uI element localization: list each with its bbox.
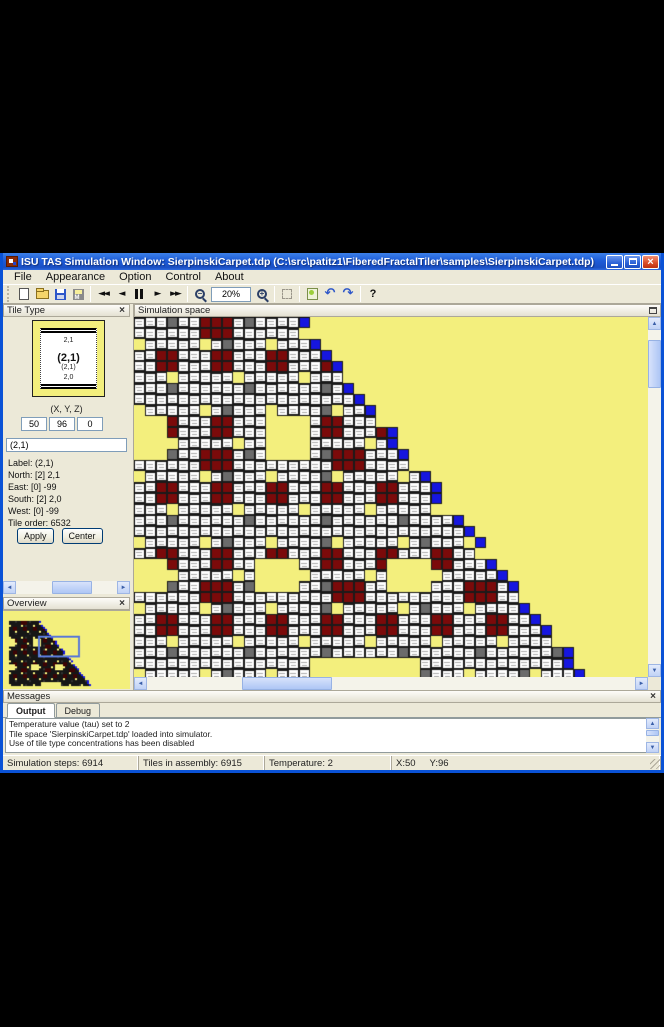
save-button[interactable]	[51, 285, 69, 303]
simulation-panel: Simulation space ▲ ▼ ◄ ►	[134, 304, 661, 690]
minimize-icon	[611, 264, 618, 266]
new-button[interactable]	[15, 285, 33, 303]
status-bar: Simulation steps: 6914 Tiles in assembly…	[3, 755, 661, 770]
tile-type-hscrollbar[interactable]: ◄ ►	[3, 581, 130, 594]
menu-option[interactable]: Option	[112, 270, 158, 284]
toolbar-separator	[274, 286, 275, 302]
x-coordinate-field[interactable]: 50	[21, 417, 47, 431]
play-icon: ►	[155, 285, 160, 303]
zoom-in-button[interactable]: +	[253, 285, 271, 303]
step-back-button[interactable]: ◄	[112, 285, 130, 303]
toolbar-separator	[360, 286, 361, 302]
export-icon	[73, 289, 84, 300]
open-folder-icon	[36, 290, 49, 299]
rewind-icon: ◄◄	[98, 285, 108, 303]
toolbar: ◄◄ ◄ ► ►► − 20% + ↶ ↷ ?	[3, 284, 661, 304]
tile-label-line: Label: (2,1)	[8, 457, 128, 469]
window-title: ISU TAS Simulation Window: SierpinskiCar…	[21, 256, 606, 268]
pause-icon	[135, 289, 143, 299]
new-document-icon	[19, 288, 29, 300]
tab-output[interactable]: Output	[7, 703, 55, 718]
zoom-out-button[interactable]: −	[191, 285, 209, 303]
status-tiles-in-assembly: Tiles in assembly: 6915	[139, 756, 265, 770]
status-temperature: Temperature: 2	[265, 756, 392, 770]
close-icon: ×	[647, 257, 653, 267]
scroll-left-icon[interactable]: ◄	[3, 581, 16, 594]
toolbar-separator	[187, 286, 188, 302]
tile-north-glue-label: 2,1	[41, 337, 96, 344]
status-simulation-steps: Simulation steps: 6914	[3, 756, 139, 770]
menu-appearance[interactable]: Appearance	[39, 270, 112, 284]
export-button[interactable]	[69, 285, 87, 303]
zoom-level-input[interactable]: 20%	[211, 287, 251, 302]
status-x: X:50	[396, 758, 416, 769]
simulation-header: Simulation space	[134, 304, 661, 317]
tile-type-header: Tile Type ×	[3, 304, 130, 317]
tile-center-label: (2,1)	[57, 352, 80, 364]
help-icon: ?	[370, 288, 377, 300]
fast-forward-icon: ►►	[170, 285, 180, 303]
simulation-title: Simulation space	[138, 305, 649, 316]
messages-title: Messages	[7, 691, 649, 702]
overview-header: Overview ×	[3, 597, 130, 610]
messages-log: Temperature value (tau) set to 2 Tile sp…	[5, 718, 659, 753]
open-button[interactable]	[33, 285, 51, 303]
y-coordinate-field[interactable]: 96	[49, 417, 75, 431]
title-bar: ISU TAS Simulation Window: SierpinskiCar…	[3, 253, 661, 270]
menu-file[interactable]: File	[7, 270, 39, 284]
status-cursor-coords: X:50 Y:96	[392, 756, 661, 770]
redo-button[interactable]: ↷	[339, 285, 357, 303]
scrollbar-corner	[648, 677, 661, 690]
resize-grip[interactable]	[650, 759, 660, 769]
scroll-down-icon[interactable]: ▼	[646, 742, 659, 753]
status-y: Y:96	[430, 758, 449, 769]
redo-icon: ↷	[343, 286, 354, 302]
tile-east-line: East: [0] -99	[8, 481, 128, 493]
scroll-down-icon[interactable]: ▼	[648, 664, 661, 677]
tile-south-glue-label: 2,0	[41, 374, 96, 381]
tile-info: Label: (2,1) North: [2] 2,1 East: [0] -9…	[8, 457, 128, 529]
glue-bar-south	[41, 387, 96, 389]
z-coordinate-field[interactable]: 0	[77, 417, 103, 431]
float-panel-icon[interactable]	[649, 307, 657, 314]
close-button[interactable]: ×	[642, 255, 659, 269]
left-panel: Tile Type × 2,1 (2,1) (2,1) 2,0 (X, Y, Z…	[3, 304, 130, 690]
overview-minimap[interactable]	[3, 610, 130, 689]
simulation-hscrollbar[interactable]: ◄ ►	[134, 677, 648, 690]
tile-type-title: Tile Type	[7, 305, 118, 316]
messages-vscrollbar[interactable]: ▲ ▼	[646, 718, 659, 753]
menu-bar: File Appearance Option Control About	[3, 270, 661, 284]
toolbar-separator	[299, 286, 300, 302]
minimize-button[interactable]	[606, 255, 623, 269]
toolbar-grip[interactable]	[7, 286, 12, 302]
scroll-left-icon[interactable]: ◄	[134, 677, 147, 690]
select-region-button[interactable]	[278, 285, 296, 303]
undo-button[interactable]: ↶	[321, 285, 339, 303]
apply-button[interactable]: Apply	[17, 528, 54, 544]
simulation-canvas[interactable]	[134, 317, 648, 677]
maximize-button[interactable]	[624, 255, 641, 269]
snapshot-icon	[307, 288, 318, 300]
tab-debug[interactable]: Debug	[56, 703, 101, 717]
scroll-thumb[interactable]	[646, 730, 659, 736]
zoom-in-icon: +	[257, 289, 267, 299]
glue-bar-south	[41, 384, 96, 386]
overview-title: Overview	[7, 598, 118, 609]
tile-preview: 2,1 (2,1) (2,1) 2,0	[32, 320, 105, 397]
scroll-right-icon[interactable]: ►	[635, 677, 648, 690]
center-button[interactable]: Center	[62, 528, 103, 544]
scroll-up-icon[interactable]: ▲	[646, 718, 659, 729]
tile-preview-tile: 2,1 (2,1) (2,1) 2,0	[40, 328, 97, 389]
tile-sub-label: (2,1)	[61, 364, 75, 371]
overview-close-icon[interactable]: ×	[118, 599, 126, 609]
messages-tabs: Output Debug	[3, 703, 661, 718]
pause-button[interactable]	[130, 285, 148, 303]
glue-bar-north	[41, 328, 96, 330]
menu-about[interactable]: About	[208, 270, 251, 284]
rewind-button[interactable]: ◄◄	[94, 285, 112, 303]
zoom-out-icon: −	[195, 289, 205, 299]
messages-close-icon[interactable]: ×	[649, 692, 657, 702]
save-icon	[55, 289, 66, 300]
log-line: Use of tile type concentrations has been…	[9, 739, 644, 749]
scroll-up-icon[interactable]: ▲	[648, 317, 661, 330]
messages-header: Messages ×	[3, 690, 661, 703]
undo-icon: ↶	[325, 286, 336, 302]
tile-name-field[interactable]: (2,1)	[6, 438, 127, 452]
tile-north-line: North: [2] 2,1	[8, 469, 128, 481]
fast-forward-button[interactable]: ►►	[166, 285, 184, 303]
scroll-right-icon[interactable]: ►	[117, 581, 130, 594]
simulation-vscrollbar[interactable]: ▲ ▼	[648, 317, 661, 677]
menu-control[interactable]: Control	[158, 270, 207, 284]
tile-south-line: South: [2] 2,0	[8, 493, 128, 505]
tile-west-line: West: [0] -99	[8, 505, 128, 517]
scroll-thumb[interactable]	[648, 340, 661, 388]
messages-panel: Messages × Output Debug Temperature valu…	[3, 690, 661, 755]
step-back-icon: ◄	[119, 285, 124, 303]
toolbar-separator	[90, 286, 91, 302]
scroll-thumb[interactable]	[242, 677, 332, 690]
help-button[interactable]: ?	[364, 285, 382, 303]
glue-bar-north	[41, 331, 96, 333]
scroll-thumb[interactable]	[52, 581, 92, 594]
coords-label: (X, Y, Z)	[3, 404, 130, 414]
tile-type-close-icon[interactable]: ×	[118, 306, 126, 316]
app-window: ISU TAS Simulation Window: SierpinskiCar…	[0, 253, 664, 773]
maximize-icon	[629, 258, 637, 265]
app-icon	[6, 256, 18, 267]
snapshot-button[interactable]	[303, 285, 321, 303]
selection-rectangle-icon	[282, 289, 292, 299]
play-button[interactable]: ►	[148, 285, 166, 303]
